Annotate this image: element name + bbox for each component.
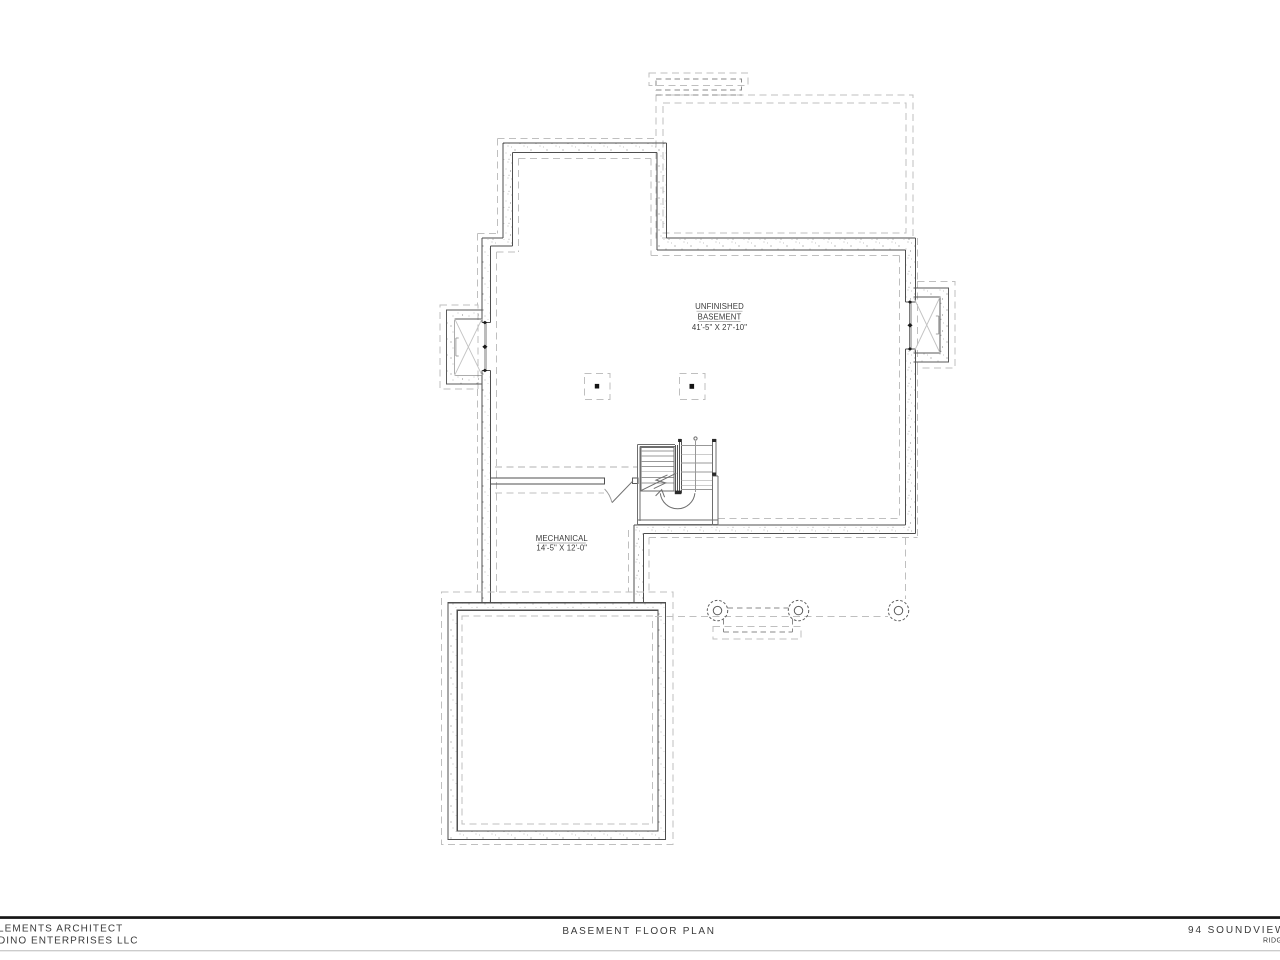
svg-text:BASEMENT: BASEMENT [698,313,742,322]
svg-text:UNFINISHED: UNFINISHED [695,302,744,311]
svg-text:LEMENTS ARCHITECT: LEMENTS ARCHITECT [0,924,123,935]
svg-text:RIDGE: RIDGE [1263,938,1280,945]
svg-text:DINO ENTERPRISES LLC: DINO ENTERPRISES LLC [0,936,138,947]
svg-text:14'-5" X 12'-0": 14'-5" X 12'-0" [536,544,587,553]
svg-text:94 SOUNDVIEW AV: 94 SOUNDVIEW AV [1188,925,1280,936]
svg-text:41'-5" X 27'-10": 41'-5" X 27'-10" [692,323,747,332]
svg-text:BASEMENT FLOOR PLAN: BASEMENT FLOOR PLAN [562,926,715,937]
svg-text:MECHANICAL: MECHANICAL [536,534,589,543]
